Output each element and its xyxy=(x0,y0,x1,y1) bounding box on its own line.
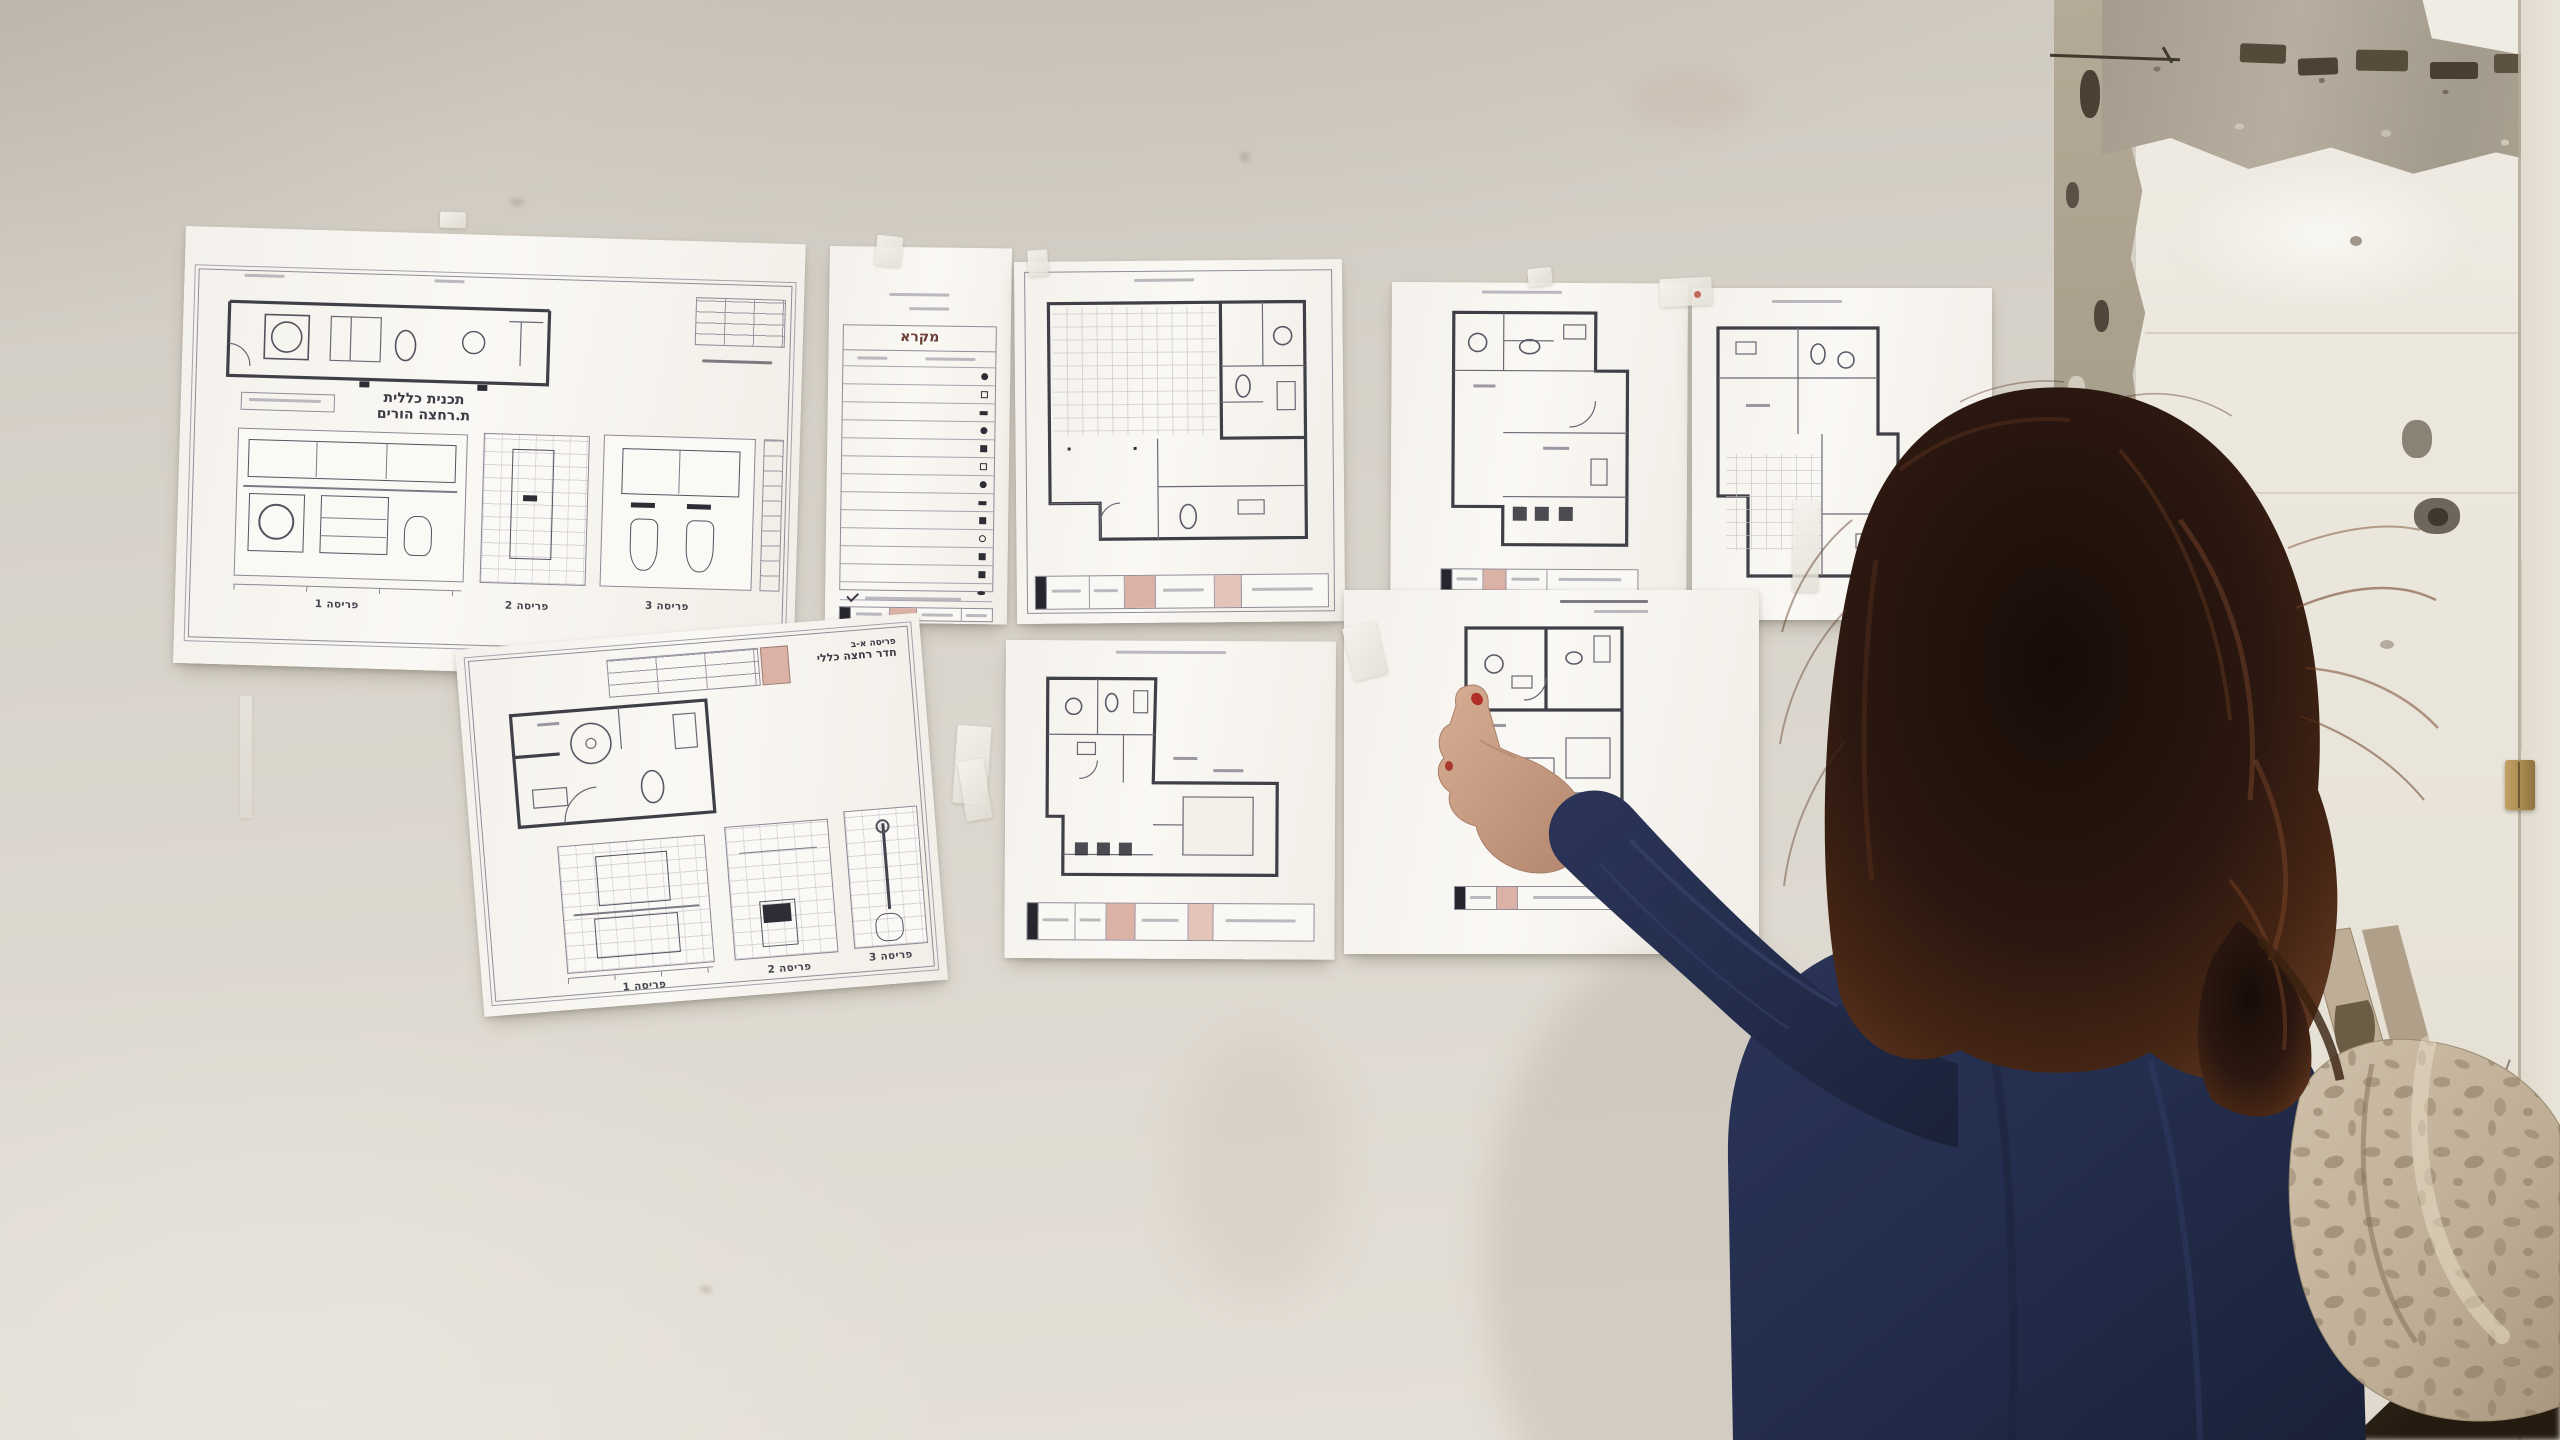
panel-label: פריסה 1 xyxy=(622,978,667,994)
masking-tape xyxy=(1659,277,1712,308)
title-cell xyxy=(1038,903,1075,939)
annotation-bar xyxy=(889,293,949,297)
title-strip xyxy=(1026,902,1314,942)
annotation-bar xyxy=(1482,290,1562,293)
elevation-panel-3 xyxy=(599,434,755,590)
toilet-front xyxy=(875,912,905,942)
annotation-bar xyxy=(1116,651,1226,655)
legend-row xyxy=(843,384,995,404)
title-cell xyxy=(1213,904,1313,941)
title-strip xyxy=(1035,573,1329,610)
lintel-recess xyxy=(2356,50,2408,72)
wall-stain xyxy=(510,198,524,206)
wall-spot xyxy=(2350,236,2362,246)
drawing-sheet-general-bathroom: פריסה א-ב חדר רחצה כללי xyxy=(455,613,948,1017)
toilet-front xyxy=(629,518,659,571)
elevation-panel-1 xyxy=(234,428,468,583)
title-cell xyxy=(1188,904,1213,940)
plaster-hole xyxy=(2066,182,2079,208)
drawer-front xyxy=(762,903,791,923)
masking-tape xyxy=(1027,249,1049,276)
title-cell xyxy=(1027,903,1038,939)
legend-row xyxy=(841,492,993,512)
annotation-bar xyxy=(1134,278,1194,282)
elevation-panel-1 xyxy=(557,835,715,974)
legend-row xyxy=(842,474,994,494)
annotation-bar xyxy=(1772,300,1842,303)
vanity-cabinet xyxy=(594,912,681,959)
apartment-plan-drawing xyxy=(1036,285,1322,563)
fingernail xyxy=(1445,761,1453,771)
toilet-side xyxy=(403,516,432,557)
block-joint xyxy=(2145,332,2545,334)
title-cell xyxy=(1036,577,1047,609)
title-cell xyxy=(1075,903,1106,939)
panel-label: פריסה 2 xyxy=(505,600,549,613)
drawing-sheet-parents-bathroom: תכנית כללית ת.רחצה הורים xyxy=(173,226,806,681)
red-smudge xyxy=(1694,291,1701,298)
legend-row xyxy=(841,528,993,548)
header-pink-box xyxy=(760,645,791,685)
masking-tape xyxy=(440,212,467,229)
plaster-hole xyxy=(2080,70,2100,118)
title-cell xyxy=(1090,576,1125,608)
legend-table: מקרא xyxy=(839,324,997,592)
title-cell xyxy=(1047,576,1090,608)
lintel-recess xyxy=(2298,57,2339,75)
legend-row xyxy=(840,564,992,584)
tall-cabinet xyxy=(509,449,554,560)
lower-cabinet xyxy=(319,495,389,555)
wall-stain xyxy=(1240,152,1250,162)
lintel-recess xyxy=(2430,62,2478,79)
bathroom-plan-drawing xyxy=(219,283,558,405)
panel-label: פריסה 3 xyxy=(645,600,689,613)
wall-sheen xyxy=(2155,150,2495,320)
drawing-sheet-legend: מקרא xyxy=(825,246,1012,625)
legend-row xyxy=(843,366,995,386)
hair-flyaway xyxy=(2296,588,2436,608)
wall-stain xyxy=(1630,70,1750,130)
legend-row xyxy=(843,402,995,422)
masking-tape xyxy=(875,235,904,268)
handbag xyxy=(2289,925,2560,1421)
title-cell xyxy=(962,609,992,621)
legend-row xyxy=(841,546,993,566)
shower-head xyxy=(875,819,890,834)
wall-stain xyxy=(700,1286,712,1293)
title-cell xyxy=(1156,575,1215,608)
counter-line xyxy=(243,485,457,493)
window xyxy=(621,448,740,497)
title-cell xyxy=(1125,576,1156,608)
legend-row xyxy=(842,438,994,458)
legend-row xyxy=(841,510,993,530)
legend-row xyxy=(842,420,994,440)
masking-tape xyxy=(1527,267,1553,287)
title-cell xyxy=(1215,575,1242,607)
lintel-recess xyxy=(2240,43,2287,64)
elevation-panel-2 xyxy=(724,819,838,961)
panel-label: פריסה 1 xyxy=(315,598,359,611)
plaster-hole xyxy=(2094,300,2109,332)
bathroom-plan-drawing xyxy=(496,689,730,843)
tape-remnant-strip xyxy=(240,696,252,818)
accent-strip xyxy=(687,504,711,510)
upper-cabinet xyxy=(248,439,457,483)
shelf-line xyxy=(739,847,817,855)
accent-strip xyxy=(631,502,655,508)
shower-column xyxy=(881,823,890,909)
title-cell xyxy=(1106,904,1135,940)
drawing-sheet-plan-a xyxy=(1014,259,1345,624)
hair-flyaway xyxy=(2306,668,2438,728)
legend-row xyxy=(842,456,994,476)
fixture xyxy=(523,495,537,501)
apartment-plan-drawing xyxy=(1033,664,1302,893)
legend-header: מקרא xyxy=(900,329,939,346)
schedule-table xyxy=(695,297,786,348)
woman-figure xyxy=(1300,370,2560,1440)
elevation-panel-2 xyxy=(480,433,590,586)
toilet-front xyxy=(685,520,715,573)
sheet-title: תכנית כללית ת.רחצה הורים xyxy=(348,389,499,426)
hair-flyaway xyxy=(2288,527,2420,548)
legend-header-row: מקרא xyxy=(844,325,996,352)
construction-site-photo: תכנית כללית ת.רחצה הורים xyxy=(0,0,2560,1440)
title-cell xyxy=(917,608,962,621)
annotation-bar xyxy=(909,307,949,311)
elevation-panel-3 xyxy=(843,805,928,948)
title-cell xyxy=(1135,904,1188,940)
drawing-sheet-plan-d xyxy=(1004,640,1336,960)
mirror xyxy=(595,851,671,907)
